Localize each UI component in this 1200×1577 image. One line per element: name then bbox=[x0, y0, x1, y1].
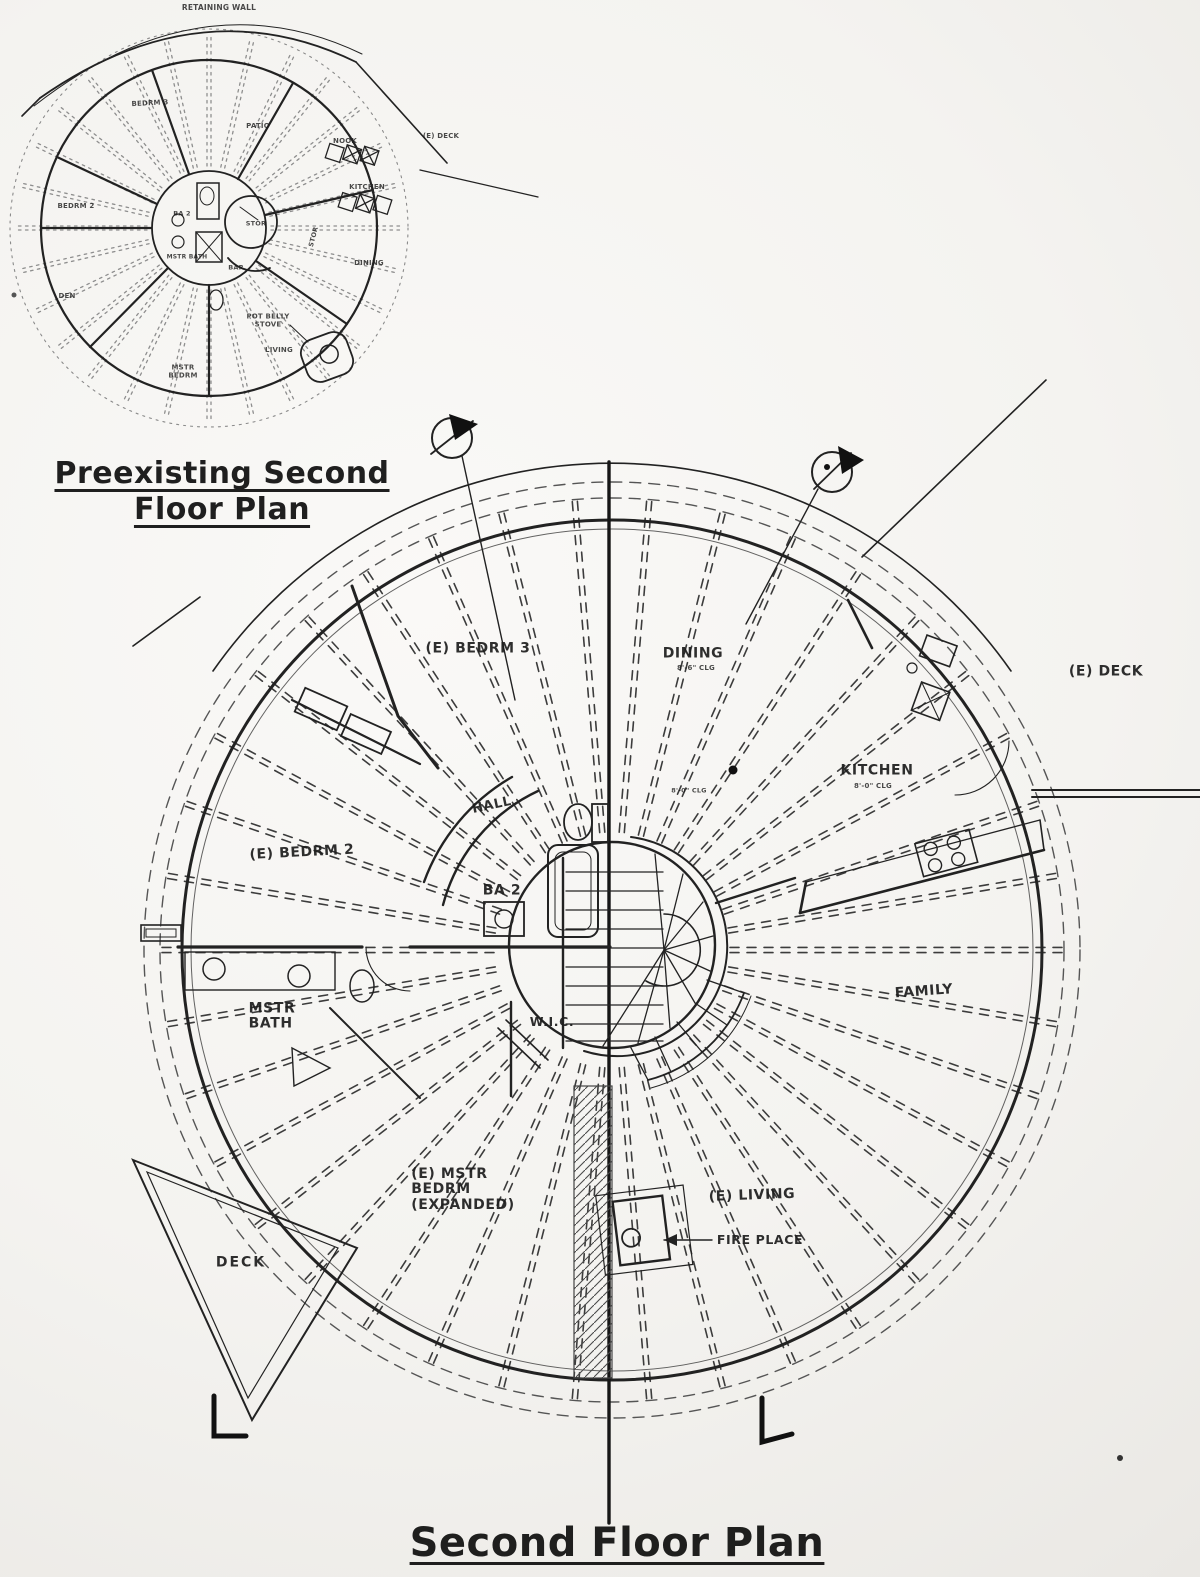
label-deck-right: (E) DECK bbox=[1069, 664, 1143, 679]
label-wic: W.I.C. bbox=[530, 1015, 574, 1029]
label-pre-kitchen: KITCHEN bbox=[349, 184, 385, 192]
label-pre-den: DEN bbox=[58, 293, 75, 301]
label-pre-mstr-bedrm: MSTR BEDRM bbox=[168, 364, 197, 379]
preexisting-plan-drawing bbox=[10, 25, 538, 427]
label-pre-pot-belly-stove: POT BELLY STOVE bbox=[246, 313, 289, 328]
label-pre-patio: PATIO bbox=[246, 123, 270, 131]
label-kitchen-clg: 8'-0" CLG bbox=[854, 783, 892, 791]
preexisting-plan-title: Preexisting Second Floor Plan bbox=[54, 456, 389, 528]
label-pre-nook: NOOK bbox=[333, 138, 357, 146]
section-marker-left bbox=[431, 414, 515, 700]
label-deck: DECK bbox=[216, 1255, 266, 1270]
label-mstr-bath: MSTR BATH bbox=[249, 1002, 296, 1033]
label-dining-clg: 8'-6" CLG bbox=[677, 665, 715, 673]
label-bedrm3: (E) BEDRM 3 bbox=[425, 641, 530, 656]
section-marker-right bbox=[746, 446, 864, 624]
label-pre-living: LIVING bbox=[265, 347, 293, 355]
label-dining: DINING bbox=[663, 646, 724, 661]
floor-plan-linework bbox=[0, 0, 1200, 1577]
label-retaining-wall: RETAINING WALL bbox=[182, 4, 256, 12]
label-ba2: BA 2 bbox=[483, 883, 522, 898]
label-living: (E) LIVING bbox=[708, 1187, 795, 1205]
label-pre-stor-center: STOR bbox=[246, 220, 266, 227]
label-center-clg: 8'-0" CLG bbox=[671, 787, 706, 794]
label-pre-bedrm2: BEDRM 2 bbox=[58, 203, 95, 211]
label-pre-deck: (E) DECK bbox=[423, 133, 459, 141]
label-kitchen: KITCHEN bbox=[840, 763, 913, 778]
label-mstr-bedrm: (E) MSTR BEDRM (EXPANDED) bbox=[411, 1167, 515, 1213]
label-fireplace: FIRE PLACE bbox=[717, 1233, 803, 1247]
scanned-floor-plan-sheet: RETAINING WALL BEDRM 3 PATIO NOOK (E) DE… bbox=[0, 0, 1200, 1577]
label-pre-dining: DINING bbox=[354, 260, 384, 268]
label-pre-ba2: BA 2 bbox=[173, 210, 191, 217]
label-pre-mstr-bath: MSTR BATH bbox=[167, 255, 208, 262]
label-pre-bar: BAR bbox=[228, 264, 244, 271]
second-floor-plan-title: Second Floor Plan bbox=[410, 1521, 825, 1565]
